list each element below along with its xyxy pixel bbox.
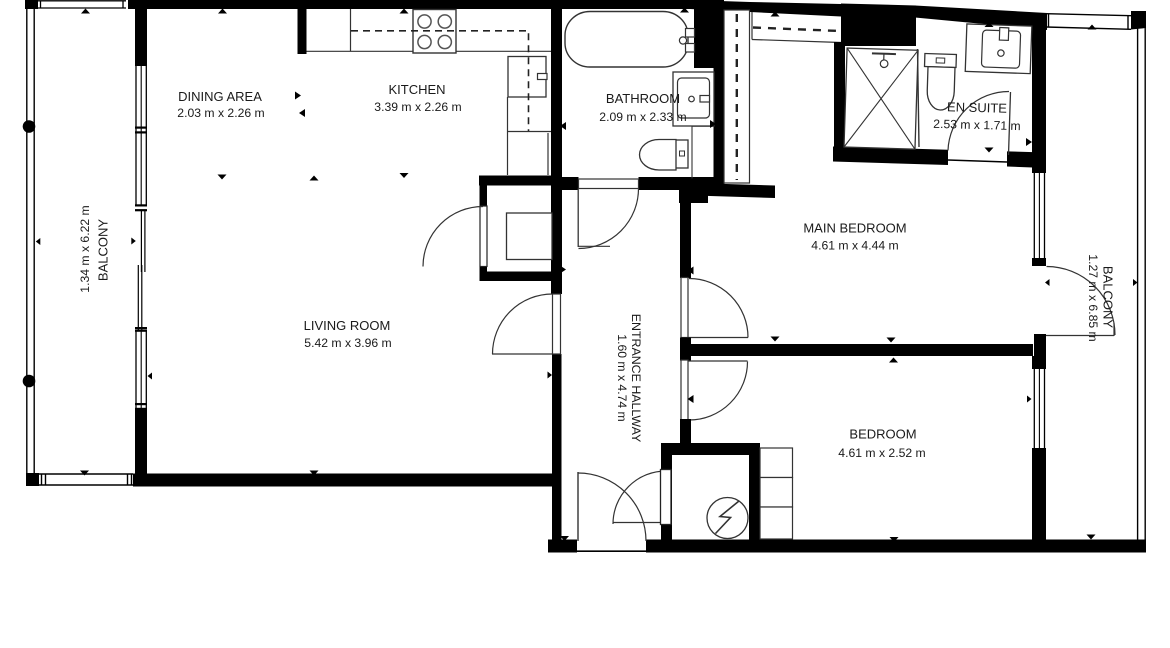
svg-text:2.53 m x 1.71 m: 2.53 m x 1.71 m (933, 117, 1021, 133)
svg-text:2.09 m x 2.33 m: 2.09 m x 2.33 m (599, 110, 686, 124)
svg-text:1.27 m x 6.85 m: 1.27 m x 6.85 m (1086, 254, 1100, 341)
svg-text:2.03 m x 2.26 m: 2.03 m x 2.26 m (177, 106, 264, 120)
svg-text:1.34 m x 6.22 m: 1.34 m x 6.22 m (78, 205, 92, 292)
svg-text:DINING AREA: DINING AREA (178, 89, 262, 104)
svg-text:KITCHEN: KITCHEN (388, 82, 445, 97)
svg-text:BATHROOM: BATHROOM (606, 91, 680, 106)
svg-text:4.61 m x 4.44 m: 4.61 m x 4.44 m (811, 239, 898, 253)
svg-text:3.39 m x 2.26 m: 3.39 m x 2.26 m (374, 100, 461, 114)
svg-text:EN SUITE: EN SUITE (947, 99, 1008, 116)
svg-text:BALCONY: BALCONY (1101, 266, 1116, 328)
svg-text:BEDROOM: BEDROOM (849, 427, 916, 442)
svg-text:5.42 m x 3.96 m: 5.42 m x 3.96 m (304, 336, 391, 350)
svg-text:1.60 m x 4.74 m: 1.60 m x 4.74 m (615, 334, 629, 421)
svg-text:ENTRANCE HALLWAY: ENTRANCE HALLWAY (629, 314, 643, 443)
svg-text:LIVING ROOM: LIVING ROOM (304, 318, 391, 333)
svg-text:MAIN BEDROOM: MAIN BEDROOM (803, 221, 906, 236)
svg-text:BALCONY: BALCONY (96, 219, 111, 281)
svg-text:4.61 m x 2.52 m: 4.61 m x 2.52 m (838, 446, 925, 460)
